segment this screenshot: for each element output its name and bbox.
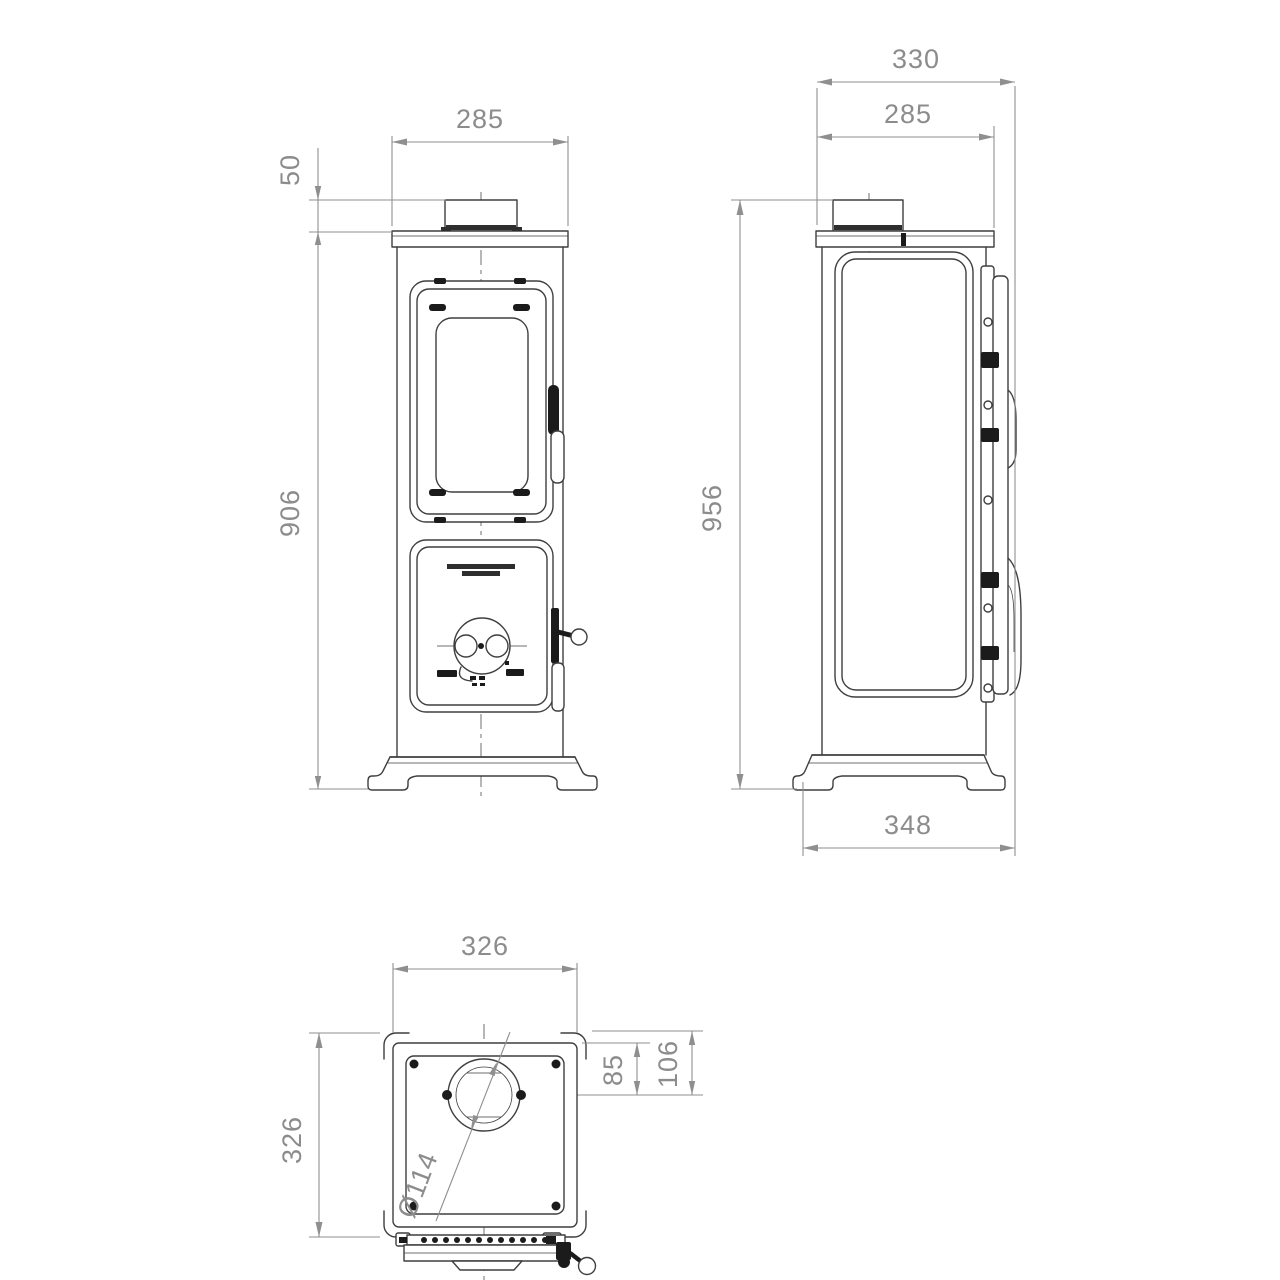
screw-dot [552, 1060, 561, 1069]
max-mark [437, 670, 457, 677]
hinge-block [981, 352, 999, 368]
handle-knob [579, 1258, 596, 1275]
base [793, 755, 1005, 790]
side-panel [835, 252, 973, 697]
door-hinge-mark [434, 278, 446, 284]
dim-flue-offset-85: 85 [582, 1043, 650, 1095]
screw-dot [410, 1060, 419, 1069]
dim-top-width: 326 [393, 931, 577, 1033]
svg-text:50: 50 [275, 154, 305, 186]
top-plate [392, 231, 568, 247]
side-view: 330 285 956 348 [697, 44, 1021, 856]
svg-text:285: 285 [884, 99, 932, 129]
flue-lug [516, 1090, 526, 1100]
door-hinge-mark [514, 517, 526, 523]
svg-text:326: 326 [277, 1116, 307, 1164]
dim-top-depth: 326 [277, 1033, 380, 1237]
min-mark [506, 669, 524, 676]
svg-text:956: 956 [697, 484, 727, 532]
front-edge-detail [396, 1233, 596, 1275]
dim-front-height: 906 [275, 489, 368, 789]
vent-strip [407, 1235, 565, 1245]
fire-door-handle [548, 385, 559, 435]
svg-text:906: 906 [275, 489, 305, 537]
flue-collar-shadow [446, 225, 516, 230]
technical-drawing-page: 285 50 906 [0, 0, 1280, 1280]
svg-text:330: 330 [892, 44, 940, 74]
svg-text:348: 348 [884, 810, 932, 840]
hinge-block [981, 646, 999, 660]
dim-side-height: 956 [697, 200, 833, 789]
ash-door-latch-bar [551, 608, 559, 663]
glass-window [436, 318, 528, 492]
door-hinge-mark [434, 517, 446, 523]
screw-dot [552, 1202, 561, 1211]
svg-text:106: 106 [653, 1040, 683, 1088]
door-hinge-mark [514, 278, 526, 284]
ash-door-handle-knob [571, 629, 587, 645]
fire-door-latch [551, 431, 564, 483]
hinge-block [981, 572, 999, 588]
stove-dimension-drawing: 285 50 906 [0, 0, 1280, 1280]
front-view: 285 50 906 [275, 104, 597, 800]
dim-side-base-depth: 348 [803, 782, 1015, 856]
brand-text-block [462, 571, 500, 576]
top-view: 326 326 85 106 Ø114 [277, 931, 703, 1280]
svg-text:85: 85 [598, 1054, 628, 1086]
flue-lug [442, 1090, 452, 1100]
brand-text-block [447, 564, 515, 569]
base [368, 757, 597, 790]
svg-text:326: 326 [461, 931, 509, 961]
hinge-block [981, 428, 999, 442]
front-tab [452, 1261, 522, 1270]
svg-text:285: 285 [456, 104, 504, 134]
